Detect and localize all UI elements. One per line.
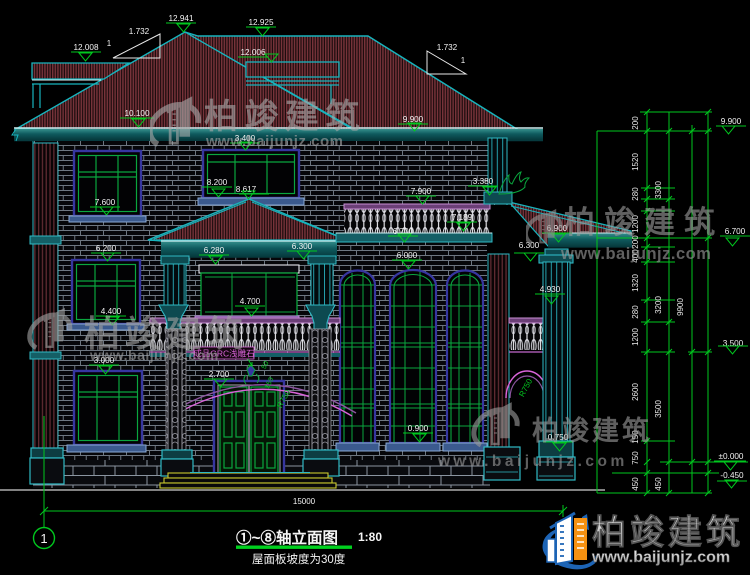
svg-text:1: 1 [40, 531, 47, 546]
svg-text:6.300: 6.300 [292, 242, 313, 251]
svg-text:柏竣建筑: 柏竣建筑 [592, 513, 744, 552]
svg-text:1520: 1520 [631, 153, 640, 171]
svg-text:1.732: 1.732 [129, 27, 150, 36]
svg-text:750: 750 [631, 451, 640, 465]
svg-text:柏竣建筑: 柏竣建筑 [532, 415, 652, 446]
svg-text:12.006: 12.006 [240, 48, 265, 57]
svg-text:0.900: 0.900 [408, 424, 429, 433]
svg-text:1:80: 1:80 [358, 530, 382, 544]
svg-text:±0.000: ±0.000 [719, 452, 744, 461]
svg-text:www.baijunjz.com: www.baijunjz.com [437, 453, 628, 470]
svg-text:柏竣建筑: 柏竣建筑 [204, 97, 366, 136]
svg-text:1.732: 1.732 [437, 43, 458, 52]
svg-text:6.000: 6.000 [397, 251, 418, 260]
svg-text:www.baijunjz.com: www.baijunjz.com [205, 133, 343, 150]
svg-text:7.189: 7.189 [452, 213, 473, 222]
svg-text:1: 1 [107, 39, 112, 48]
svg-text:450: 450 [654, 477, 663, 491]
svg-text:12.008: 12.008 [73, 43, 98, 52]
svg-text:7.600: 7.600 [95, 198, 116, 207]
svg-text:6.700: 6.700 [725, 227, 746, 236]
svg-text:①~⑧轴立面图: ①~⑧轴立面图 [236, 528, 338, 547]
svg-text:9900: 9900 [676, 298, 685, 316]
svg-text:7.900: 7.900 [411, 187, 432, 196]
svg-text:15000: 15000 [293, 497, 316, 506]
svg-text:1320: 1320 [631, 274, 640, 292]
svg-text:6.280: 6.280 [204, 246, 225, 255]
svg-text:6.200: 6.200 [96, 244, 117, 253]
svg-text:3500: 3500 [654, 400, 663, 418]
svg-text:8.200: 8.200 [207, 178, 228, 187]
svg-text:4.700: 4.700 [240, 297, 261, 306]
svg-text:450: 450 [631, 477, 640, 491]
svg-text:柏竣建筑: 柏竣建筑 [564, 205, 724, 240]
svg-text:屋面板坡度为30度: 屋面板坡度为30度 [252, 552, 346, 566]
svg-text:10.100: 10.100 [124, 109, 149, 118]
svg-text:12.941: 12.941 [168, 14, 193, 23]
svg-text:www.baijunjz.com: www.baijunjz.com [89, 347, 219, 363]
svg-text:280: 280 [631, 305, 640, 319]
svg-text:2600: 2600 [631, 383, 640, 401]
svg-text:1: 1 [461, 56, 466, 65]
svg-text:2.700: 2.700 [209, 370, 230, 379]
svg-text:12.925: 12.925 [248, 18, 273, 27]
svg-text:-0.450: -0.450 [720, 471, 744, 480]
svg-text:280: 280 [631, 187, 640, 201]
svg-text:3.380: 3.380 [473, 177, 494, 186]
svg-text:4.930: 4.930 [540, 285, 561, 294]
svg-text:1200: 1200 [631, 328, 640, 346]
svg-text:9.900: 9.900 [721, 117, 742, 126]
svg-text:200: 200 [631, 116, 640, 130]
svg-text:www.baijunjz.com: www.baijunjz.com [591, 549, 730, 566]
svg-text:3200: 3200 [654, 296, 663, 314]
svg-text:3300: 3300 [654, 181, 663, 199]
svg-text:www.baijunjz.com: www.baijunjz.com [560, 245, 711, 263]
